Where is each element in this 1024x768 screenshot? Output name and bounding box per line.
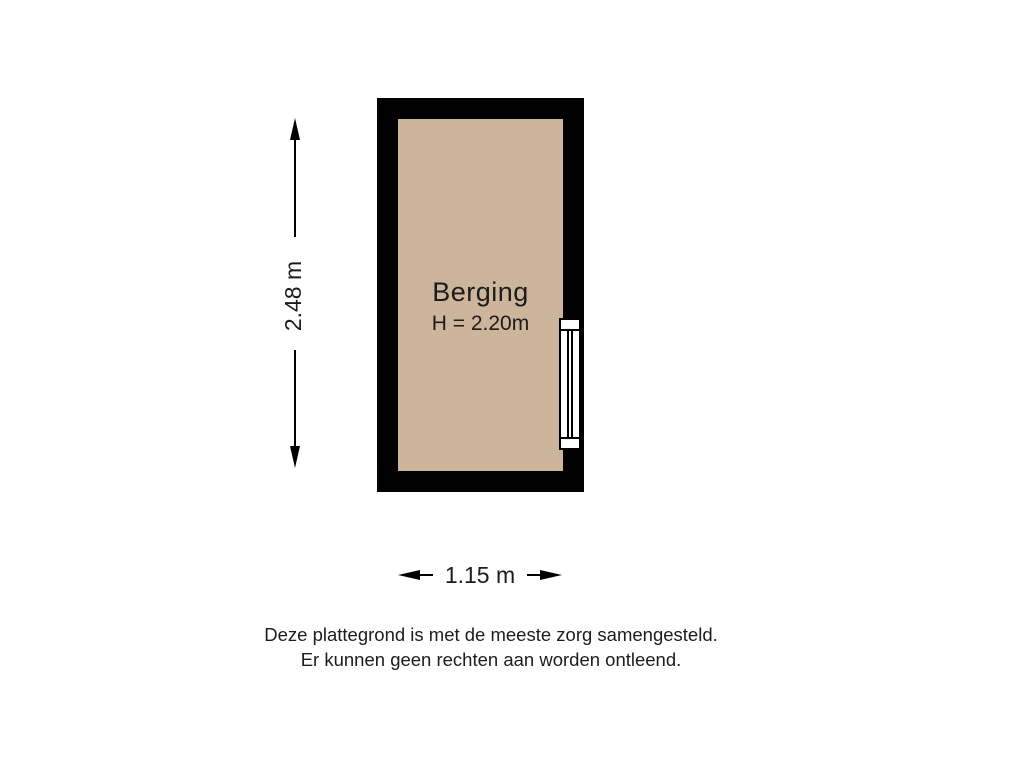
window-frame-top — [561, 320, 579, 331]
width-dimension-label: 1.15 m — [430, 561, 530, 589]
room-ceiling-height-label: H = 2.20m — [377, 312, 584, 335]
floorplan-canvas: Berging H = 2.20m 2.48 m 1.15 m Deze pla… — [0, 0, 1024, 768]
window-glazing-lines — [567, 331, 573, 437]
room-label-group: Berging H = 2.20m — [377, 277, 584, 335]
disclaimer-line-1: Deze plattegrond is met de meeste zorg s… — [91, 622, 891, 647]
window-pane — [561, 331, 579, 437]
window-frame-bottom — [561, 437, 579, 448]
window-icon — [559, 318, 581, 450]
room-name-label: Berging — [377, 277, 584, 307]
height-dimension-label: 2.48 m — [279, 226, 307, 366]
disclaimer: Deze plattegrond is met de meeste zorg s… — [91, 622, 891, 672]
disclaimer-line-2: Er kunnen geen rechten aan worden ontlee… — [91, 647, 891, 672]
room-berging: Berging H = 2.20m — [377, 98, 584, 492]
